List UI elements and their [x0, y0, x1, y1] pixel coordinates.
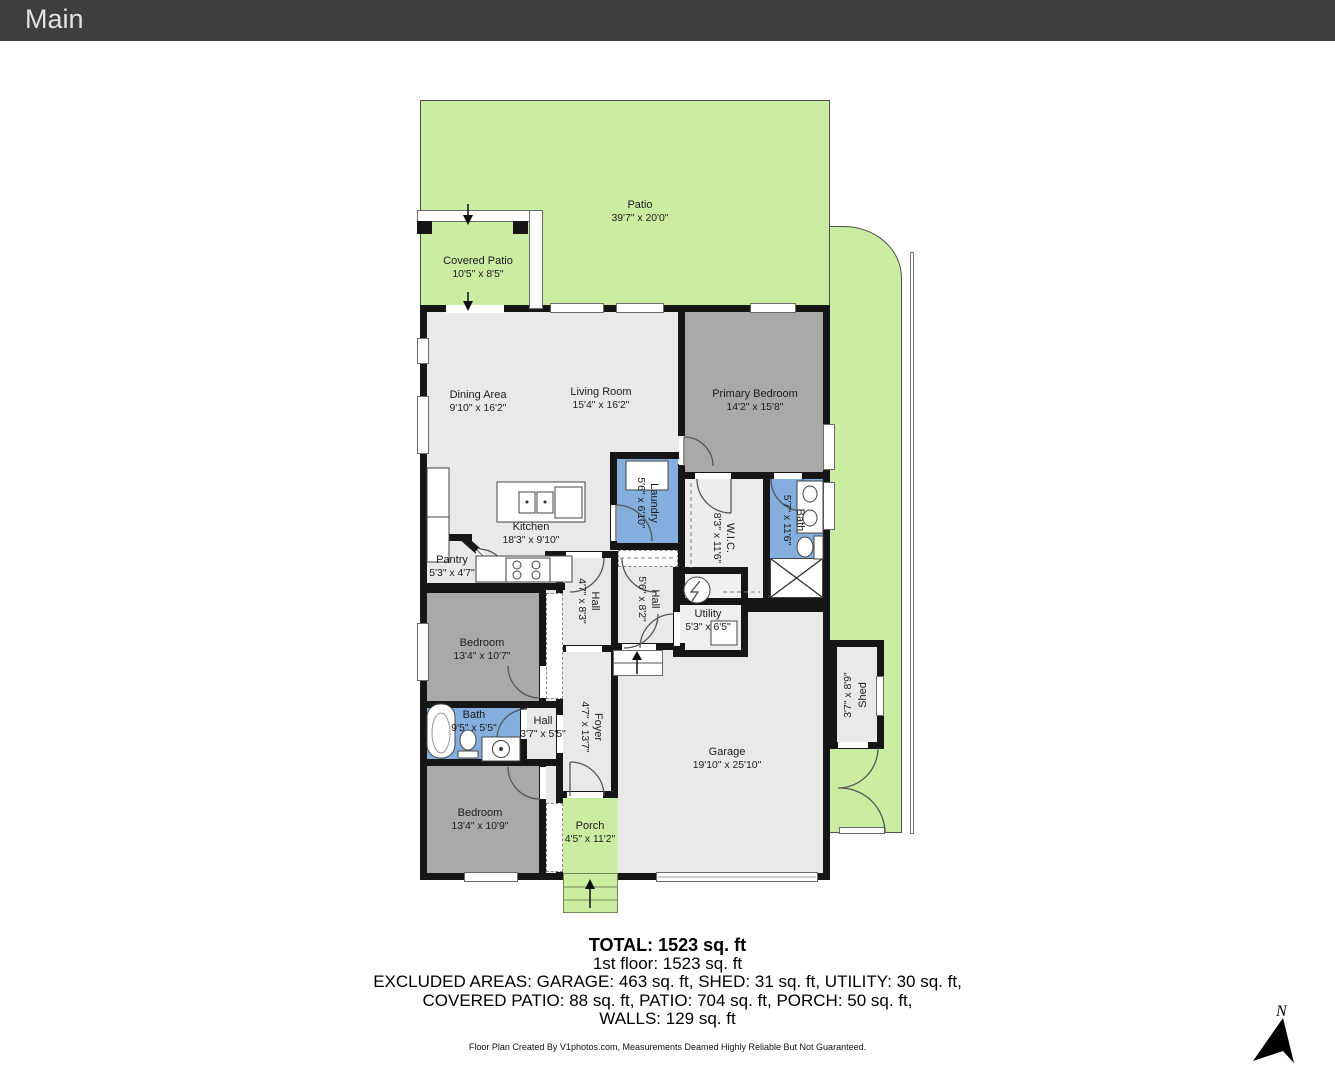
wall — [678, 305, 685, 436]
gate-leaf — [839, 827, 885, 834]
window — [550, 303, 604, 313]
wall — [830, 640, 837, 749]
excluded-areas-line3: WALLS: 129 sq. ft — [0, 1010, 1335, 1028]
window — [750, 303, 796, 313]
door-gap — [566, 552, 602, 558]
garage-steps — [613, 650, 663, 676]
fence-line — [910, 252, 914, 834]
covered-patio-post — [513, 221, 528, 234]
door-gap — [695, 473, 731, 479]
wall — [830, 640, 884, 647]
shower-area — [770, 558, 823, 598]
wall — [673, 650, 748, 657]
patio-door-gap — [446, 305, 504, 313]
window — [616, 303, 664, 313]
room-label-hall-small: Hall 3'7" x 5'5" — [520, 714, 565, 742]
title-bar: Main — [0, 0, 1335, 41]
wall — [420, 534, 472, 541]
wall — [420, 586, 546, 593]
room-label-bedroom-mid: Bedroom 13'4" x 10'7" — [454, 636, 511, 664]
window — [823, 424, 835, 470]
window — [417, 623, 429, 681]
excluded-areas-line1: EXCLUDED AREAS: GARAGE: 463 sq. ft, SHED… — [0, 973, 1335, 991]
wall — [763, 479, 770, 605]
wall — [678, 598, 830, 605]
porch-steps — [563, 873, 618, 913]
room-label-kitchen: Kitchen 18'3" x 9'10" — [503, 520, 560, 548]
wall — [823, 305, 830, 880]
door-gap — [611, 505, 617, 541]
summary-block: TOTAL: 1523 sq. ft 1st floor: 1523 sq. f… — [0, 936, 1335, 1052]
floor-plan-canvas: Main — [0, 0, 1335, 1080]
wall — [741, 567, 748, 657]
door-gap — [674, 612, 680, 646]
wall — [610, 543, 685, 550]
garage-door — [656, 872, 818, 882]
front-door-gap — [567, 792, 603, 798]
wall — [745, 605, 830, 612]
room-label-primary-bath: Bath 5'7" x 11'6" — [779, 495, 807, 545]
room-label-foyer: Foyer 4'7" x 13'7" — [577, 701, 605, 752]
door-gap — [540, 666, 546, 698]
wall — [673, 567, 748, 574]
door-gap — [679, 437, 685, 465]
covered-patio-post — [417, 221, 432, 234]
room-label-hall-bath: Bath 9'5" x 5'5" — [451, 708, 496, 736]
room-label-garage: Garage 19'10" x 25'10" — [693, 745, 762, 773]
room-label-primary-bedroom: Primary Bedroom 14'2" x 15'8" — [712, 387, 798, 415]
shed-door-gap — [838, 742, 868, 748]
wall — [611, 551, 618, 650]
door-gap — [566, 646, 602, 652]
total-area: TOTAL: 1523 sq. ft — [0, 936, 1335, 955]
shed-window — [876, 676, 884, 716]
room-label-utility: Utility 5'3" x 6'5" — [685, 607, 730, 635]
covered-patio-wall — [529, 210, 543, 309]
window — [823, 482, 835, 530]
wall — [420, 701, 563, 708]
room-label-laundry: Laundry 5'6" x 6'10" — [633, 477, 661, 528]
room-label-patio: Patio 39'7" x 20'0" — [612, 198, 669, 226]
closet — [546, 593, 563, 699]
room-label-hall-upper: Hall 4'7" x 8'3" — [574, 578, 602, 623]
room-label-hall-center: Hall 5'6" x 8'2" — [634, 576, 662, 621]
room-label-living: Living Room 15'4" x 16'2" — [570, 385, 631, 413]
excluded-areas-line2: COVERED PATIO: 88 sq. ft, PATIO: 704 sq.… — [0, 992, 1335, 1010]
window — [417, 396, 429, 454]
page-title: Main — [25, 4, 84, 35]
room-label-porch: Porch 4'5" x 11'2" — [565, 819, 615, 847]
room-label-bedroom-lower: Bedroom 13'4" x 10'9" — [452, 806, 509, 834]
door-gap — [622, 552, 656, 558]
door-gap — [540, 767, 546, 799]
first-floor-area: 1st floor: 1523 sq. ft — [0, 955, 1335, 973]
window — [417, 338, 429, 364]
closet — [546, 803, 563, 872]
room-label-pantry: Pantry 5'3" x 4'7" — [429, 553, 474, 581]
room-label-wic: W.I.C. 8'3" x 11'6" — [709, 513, 737, 563]
wall — [420, 759, 563, 766]
room-label-shed: 3'7" x 8'9" Shed — [842, 672, 870, 717]
room-label-dining: Dining Area 9'10" x 16'2" — [450, 388, 507, 416]
disclaimer: Floor Plan Created By V1photos.com, Meas… — [0, 1042, 1335, 1052]
room-label-covered-patio: Covered Patio 10'5" x 8'5" — [443, 254, 513, 282]
wall — [610, 452, 685, 459]
window — [464, 872, 518, 882]
door-gap — [774, 473, 802, 479]
